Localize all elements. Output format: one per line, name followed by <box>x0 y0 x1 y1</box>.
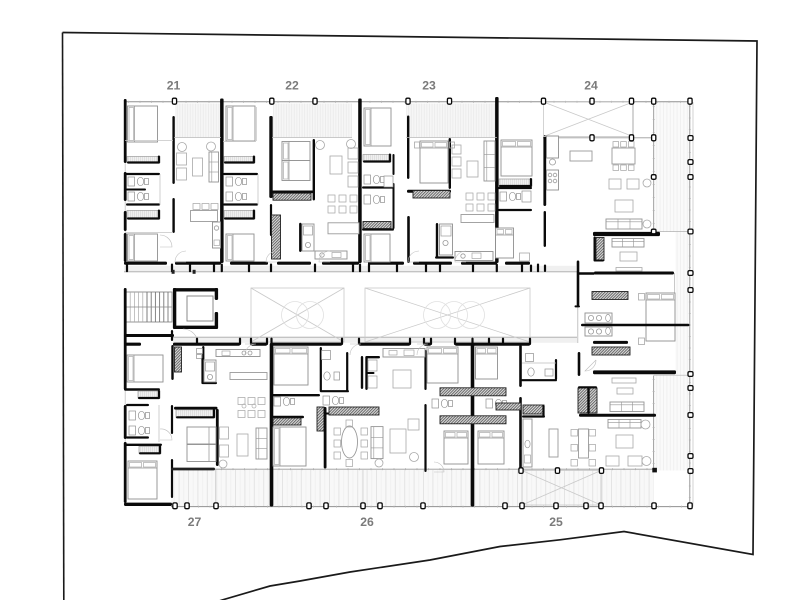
svg-text:22: 22 <box>285 79 299 93</box>
svg-text:24: 24 <box>584 79 598 93</box>
svg-text:27: 27 <box>188 515 202 529</box>
svg-text:21: 21 <box>167 79 181 93</box>
svg-text:26: 26 <box>360 515 374 529</box>
svg-text:23: 23 <box>422 79 436 93</box>
svg-text:25: 25 <box>549 515 563 529</box>
